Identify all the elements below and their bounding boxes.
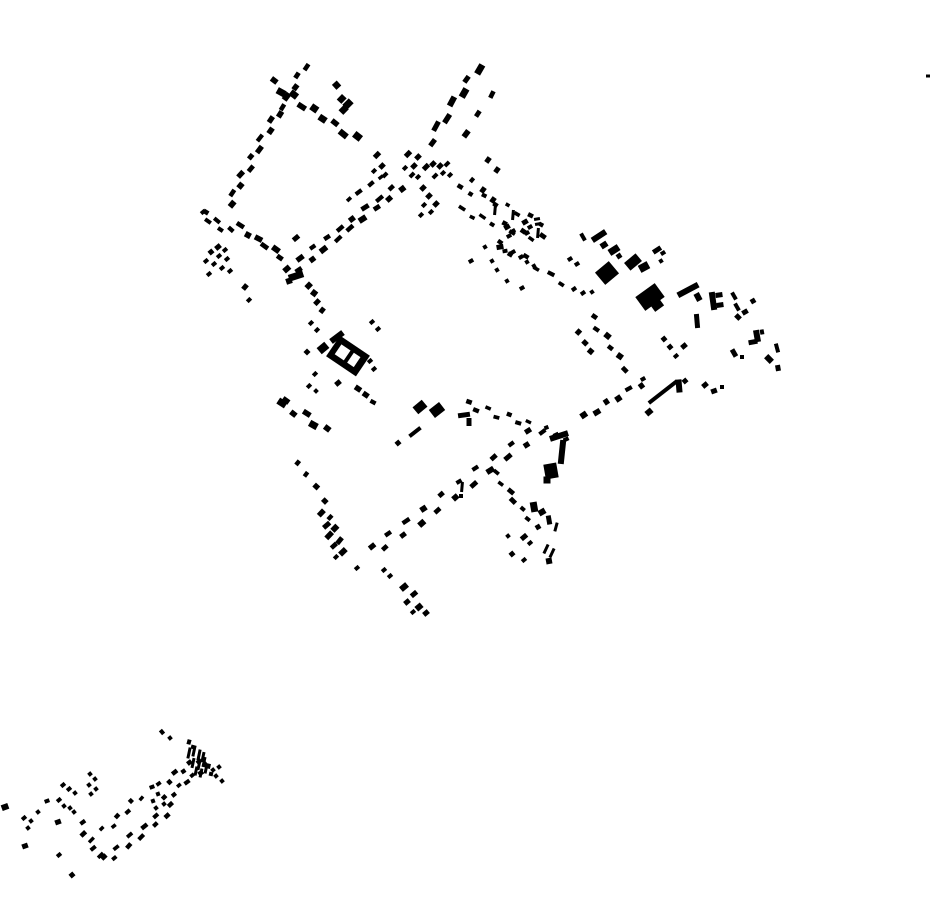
building bbox=[474, 110, 482, 118]
building bbox=[592, 326, 600, 333]
building bbox=[546, 558, 553, 565]
building bbox=[66, 786, 72, 792]
building bbox=[524, 427, 532, 435]
building bbox=[443, 160, 450, 167]
building bbox=[279, 103, 286, 111]
building bbox=[186, 739, 191, 745]
building bbox=[289, 409, 298, 417]
building bbox=[255, 145, 264, 155]
building bbox=[571, 286, 577, 292]
building bbox=[484, 156, 492, 164]
building bbox=[247, 164, 255, 173]
building bbox=[324, 530, 334, 540]
building bbox=[236, 170, 245, 179]
building bbox=[236, 181, 244, 189]
building bbox=[681, 377, 688, 384]
building bbox=[537, 508, 546, 517]
building bbox=[741, 308, 749, 315]
building bbox=[114, 813, 121, 820]
building bbox=[228, 200, 237, 209]
building bbox=[203, 258, 209, 264]
building bbox=[159, 729, 165, 735]
building bbox=[213, 217, 221, 225]
building bbox=[93, 786, 99, 792]
building bbox=[527, 224, 533, 230]
building bbox=[509, 497, 517, 505]
building bbox=[607, 344, 614, 351]
building bbox=[308, 320, 314, 326]
building bbox=[534, 217, 540, 221]
building bbox=[524, 516, 531, 522]
building bbox=[368, 542, 377, 550]
building bbox=[720, 385, 724, 389]
building bbox=[246, 297, 252, 303]
building bbox=[378, 162, 386, 170]
building bbox=[479, 186, 487, 194]
building bbox=[740, 355, 744, 359]
building bbox=[730, 348, 738, 357]
building bbox=[644, 407, 653, 416]
building bbox=[401, 517, 410, 525]
building bbox=[494, 267, 499, 272]
building bbox=[152, 821, 159, 828]
building bbox=[399, 582, 409, 592]
building bbox=[462, 129, 471, 139]
building bbox=[775, 365, 781, 372]
building bbox=[774, 343, 780, 353]
building bbox=[458, 412, 471, 419]
building bbox=[211, 261, 217, 267]
building bbox=[544, 477, 551, 484]
building bbox=[312, 483, 320, 491]
building bbox=[614, 394, 623, 403]
building bbox=[408, 426, 421, 438]
building bbox=[155, 781, 161, 787]
building bbox=[402, 165, 408, 171]
building bbox=[60, 782, 66, 788]
building bbox=[481, 193, 487, 199]
building bbox=[422, 163, 430, 171]
building bbox=[92, 776, 98, 782]
building bbox=[323, 424, 332, 433]
building bbox=[414, 602, 423, 611]
building bbox=[276, 110, 284, 119]
building bbox=[748, 339, 758, 345]
building bbox=[436, 162, 444, 170]
building bbox=[88, 836, 95, 843]
building bbox=[137, 833, 145, 841]
building bbox=[367, 180, 375, 187]
building bbox=[161, 801, 167, 807]
building bbox=[254, 234, 264, 242]
building bbox=[224, 256, 230, 262]
building bbox=[241, 283, 249, 291]
building bbox=[167, 801, 174, 808]
building bbox=[624, 385, 632, 392]
building bbox=[319, 245, 329, 254]
building bbox=[447, 95, 457, 107]
building bbox=[403, 598, 411, 606]
building bbox=[535, 524, 542, 531]
building bbox=[346, 196, 352, 202]
building bbox=[459, 494, 463, 498]
building bbox=[592, 408, 601, 416]
building bbox=[326, 514, 333, 521]
building bbox=[345, 224, 354, 233]
building bbox=[54, 819, 61, 826]
building bbox=[194, 766, 199, 775]
building bbox=[701, 381, 709, 389]
building bbox=[694, 314, 700, 328]
building bbox=[310, 289, 318, 297]
building bbox=[44, 798, 50, 803]
building bbox=[333, 554, 339, 560]
building bbox=[296, 102, 307, 112]
building bbox=[323, 234, 331, 241]
building bbox=[302, 409, 312, 418]
building bbox=[99, 826, 105, 832]
building bbox=[362, 391, 370, 399]
building bbox=[519, 285, 525, 291]
building bbox=[355, 188, 363, 196]
building bbox=[478, 213, 486, 220]
building bbox=[528, 236, 535, 242]
building bbox=[314, 327, 320, 333]
building bbox=[417, 519, 426, 528]
building bbox=[282, 264, 291, 273]
building bbox=[371, 168, 377, 174]
building bbox=[373, 204, 381, 212]
building bbox=[591, 313, 598, 320]
building bbox=[666, 343, 673, 350]
building bbox=[675, 379, 682, 392]
building bbox=[504, 278, 509, 283]
building bbox=[485, 405, 492, 411]
building-footprint-layer bbox=[0, 0, 930, 924]
building bbox=[502, 249, 508, 254]
building bbox=[352, 131, 363, 142]
building bbox=[124, 808, 131, 815]
building bbox=[658, 258, 664, 264]
building bbox=[474, 63, 485, 75]
building bbox=[67, 805, 73, 811]
building bbox=[217, 226, 224, 233]
building bbox=[506, 412, 512, 418]
building bbox=[138, 795, 144, 801]
building bbox=[543, 544, 550, 554]
building bbox=[764, 354, 774, 364]
building bbox=[334, 235, 343, 244]
building bbox=[508, 550, 515, 557]
building bbox=[505, 202, 510, 207]
building bbox=[216, 764, 222, 770]
building bbox=[318, 306, 325, 314]
building bbox=[267, 115, 275, 124]
building bbox=[429, 402, 445, 418]
building bbox=[419, 184, 427, 192]
building bbox=[530, 501, 539, 512]
building bbox=[171, 792, 177, 798]
building bbox=[442, 113, 452, 124]
building bbox=[469, 177, 475, 183]
building bbox=[404, 150, 412, 158]
building bbox=[648, 379, 679, 404]
building bbox=[591, 229, 608, 243]
building bbox=[468, 258, 474, 264]
building bbox=[79, 819, 86, 826]
building bbox=[369, 399, 376, 405]
building bbox=[660, 250, 666, 256]
building bbox=[126, 832, 133, 839]
building bbox=[204, 218, 212, 225]
building bbox=[219, 778, 225, 784]
building bbox=[616, 253, 623, 260]
building bbox=[338, 129, 349, 140]
building bbox=[387, 184, 395, 191]
building bbox=[398, 185, 406, 193]
building bbox=[128, 798, 134, 804]
building bbox=[716, 302, 724, 308]
building bbox=[419, 505, 428, 513]
building bbox=[715, 292, 723, 298]
building bbox=[603, 398, 610, 406]
building bbox=[35, 809, 41, 815]
building bbox=[384, 530, 392, 538]
building bbox=[219, 265, 225, 271]
building bbox=[207, 248, 214, 255]
building bbox=[581, 339, 589, 347]
building bbox=[303, 471, 310, 478]
building bbox=[680, 342, 688, 350]
building bbox=[580, 290, 586, 296]
building bbox=[547, 270, 555, 277]
building bbox=[421, 202, 427, 208]
building bbox=[447, 172, 453, 178]
building bbox=[488, 90, 495, 99]
building bbox=[140, 822, 148, 830]
building bbox=[348, 215, 356, 223]
building bbox=[196, 749, 201, 760]
building bbox=[460, 482, 464, 492]
building bbox=[312, 371, 318, 377]
building bbox=[304, 281, 313, 290]
building bbox=[410, 162, 418, 170]
building bbox=[457, 183, 464, 190]
building bbox=[518, 254, 524, 260]
building bbox=[167, 735, 173, 741]
building bbox=[61, 803, 67, 809]
building bbox=[415, 174, 421, 180]
building bbox=[589, 289, 595, 295]
building bbox=[247, 153, 255, 161]
building bbox=[186, 747, 191, 758]
building bbox=[539, 232, 547, 240]
building bbox=[524, 259, 529, 264]
building bbox=[472, 407, 479, 413]
building bbox=[431, 172, 438, 179]
building bbox=[469, 480, 478, 489]
building bbox=[322, 521, 331, 530]
building bbox=[166, 779, 173, 786]
building bbox=[309, 103, 319, 113]
building bbox=[471, 465, 479, 472]
building bbox=[485, 466, 495, 475]
building bbox=[437, 491, 445, 499]
building bbox=[431, 120, 440, 132]
building bbox=[520, 533, 529, 541]
building bbox=[161, 794, 168, 801]
building bbox=[489, 258, 494, 263]
building bbox=[926, 75, 930, 78]
building bbox=[112, 844, 119, 851]
building bbox=[152, 812, 159, 819]
building bbox=[56, 852, 62, 858]
building bbox=[72, 790, 78, 796]
building bbox=[425, 192, 433, 200]
building bbox=[111, 855, 117, 861]
building bbox=[440, 170, 446, 176]
building bbox=[308, 420, 319, 430]
building bbox=[321, 497, 329, 505]
building bbox=[256, 134, 264, 143]
building bbox=[309, 244, 317, 251]
building bbox=[79, 830, 87, 838]
building bbox=[303, 63, 311, 72]
building bbox=[733, 303, 740, 312]
building bbox=[313, 388, 319, 394]
building bbox=[227, 268, 233, 274]
building bbox=[153, 805, 159, 811]
building bbox=[523, 441, 531, 449]
building bbox=[206, 271, 212, 277]
building bbox=[214, 243, 222, 251]
building bbox=[422, 609, 430, 617]
building bbox=[313, 298, 321, 306]
building bbox=[205, 763, 211, 769]
building bbox=[180, 768, 186, 774]
building bbox=[68, 871, 75, 878]
building bbox=[734, 313, 742, 321]
building bbox=[525, 419, 532, 424]
building bbox=[354, 565, 360, 571]
building bbox=[521, 557, 527, 563]
building bbox=[183, 779, 190, 786]
building bbox=[334, 379, 342, 387]
building bbox=[25, 825, 31, 831]
building bbox=[330, 524, 339, 533]
building bbox=[292, 234, 301, 242]
building bbox=[418, 212, 424, 218]
building bbox=[222, 247, 228, 253]
building bbox=[505, 533, 511, 539]
building bbox=[428, 209, 434, 215]
building bbox=[155, 791, 160, 796]
building bbox=[507, 440, 515, 447]
building bbox=[413, 400, 428, 415]
building bbox=[369, 319, 375, 325]
building bbox=[489, 453, 497, 461]
building bbox=[575, 328, 583, 336]
building bbox=[295, 254, 305, 263]
building bbox=[503, 453, 513, 462]
building bbox=[373, 151, 381, 159]
building bbox=[433, 507, 441, 515]
building bbox=[244, 231, 252, 239]
building bbox=[213, 773, 219, 779]
building bbox=[317, 342, 330, 355]
building bbox=[595, 261, 619, 285]
building bbox=[458, 205, 466, 212]
building bbox=[89, 845, 96, 852]
building bbox=[56, 797, 62, 803]
building bbox=[385, 195, 393, 203]
map-canvas bbox=[0, 0, 930, 924]
building bbox=[428, 138, 437, 147]
building bbox=[489, 221, 495, 227]
building bbox=[493, 205, 497, 215]
building bbox=[308, 255, 316, 263]
building bbox=[21, 843, 28, 850]
building bbox=[381, 567, 387, 573]
building bbox=[558, 440, 566, 464]
building bbox=[574, 261, 580, 267]
building bbox=[432, 200, 440, 208]
building bbox=[336, 224, 345, 233]
building bbox=[399, 531, 407, 539]
building bbox=[408, 171, 415, 178]
building bbox=[375, 326, 381, 332]
building bbox=[497, 481, 504, 487]
building bbox=[496, 244, 504, 250]
building bbox=[125, 842, 132, 850]
building bbox=[354, 385, 363, 393]
building bbox=[507, 487, 515, 495]
building bbox=[482, 244, 487, 249]
building bbox=[549, 548, 556, 558]
building bbox=[553, 522, 558, 531]
building bbox=[236, 221, 246, 229]
building bbox=[227, 226, 235, 233]
building bbox=[303, 348, 310, 355]
building bbox=[640, 376, 646, 382]
building bbox=[521, 218, 529, 225]
building bbox=[270, 76, 279, 85]
building bbox=[558, 281, 565, 287]
building bbox=[519, 506, 525, 512]
building bbox=[410, 609, 416, 615]
building bbox=[466, 399, 473, 405]
building bbox=[271, 245, 281, 255]
building bbox=[293, 71, 300, 79]
building bbox=[260, 242, 270, 251]
building bbox=[330, 118, 339, 127]
building bbox=[176, 782, 182, 788]
building bbox=[546, 515, 552, 525]
building bbox=[462, 75, 470, 84]
building bbox=[467, 418, 472, 426]
building bbox=[693, 292, 702, 302]
building bbox=[288, 89, 299, 99]
building bbox=[228, 189, 236, 198]
building bbox=[410, 590, 419, 598]
building bbox=[394, 439, 401, 446]
building bbox=[710, 388, 717, 395]
building bbox=[469, 215, 475, 220]
building bbox=[536, 228, 540, 238]
building bbox=[21, 815, 27, 821]
building bbox=[266, 126, 274, 135]
building bbox=[216, 253, 222, 259]
